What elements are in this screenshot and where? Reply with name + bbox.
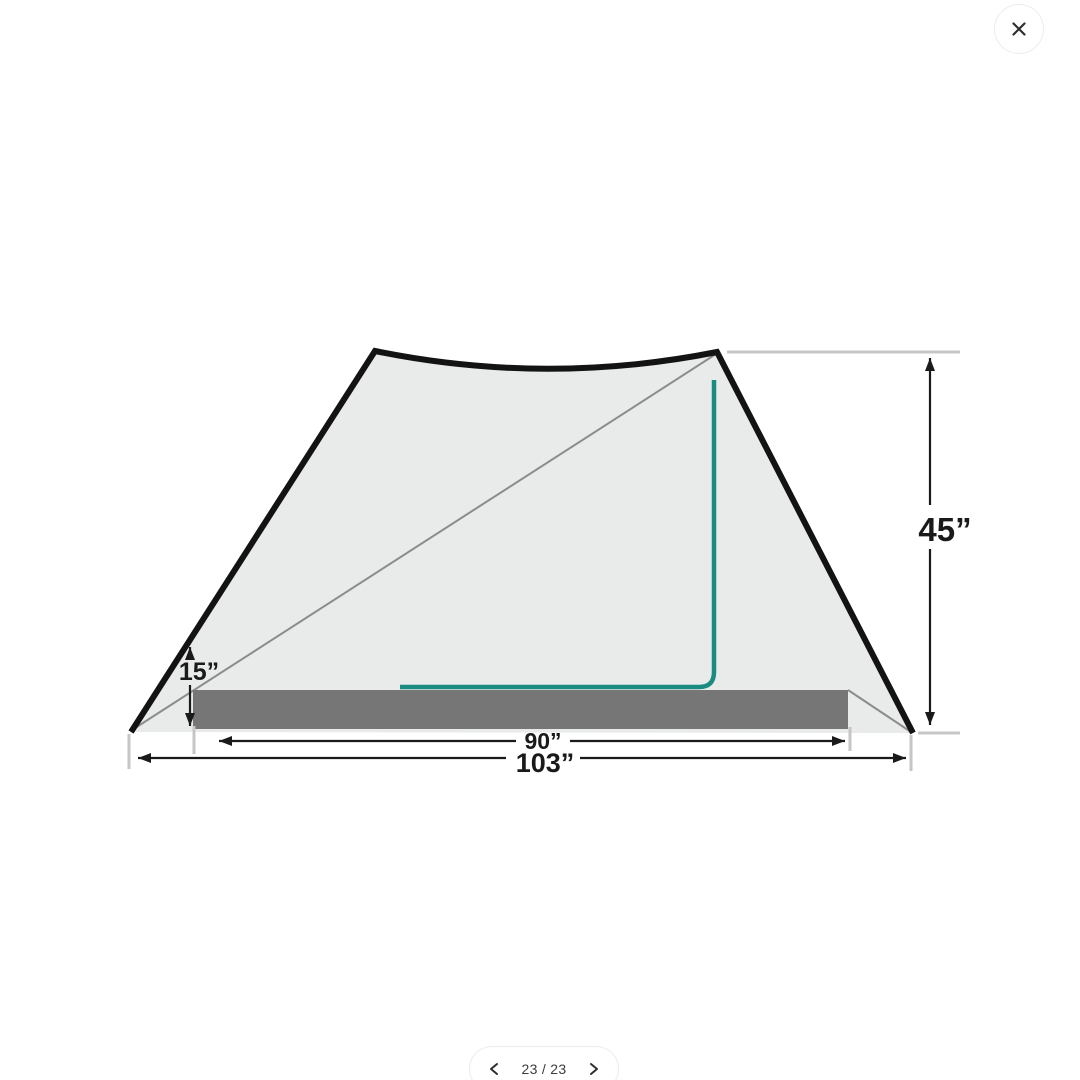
close-icon	[1008, 18, 1030, 40]
dim-103-label: 103”	[516, 748, 575, 778]
page-indicator: 23 / 23	[522, 1061, 567, 1077]
close-button[interactable]	[994, 4, 1044, 54]
tent-dimension-diagram: 45” 15” 90” 103”	[0, 0, 1080, 1080]
dim-15-label: 15”	[179, 658, 219, 686]
dim-45-label: 45”	[918, 511, 971, 548]
chevron-left-icon	[487, 1061, 503, 1077]
tent-floor	[193, 690, 848, 729]
previous-image-button[interactable]	[484, 1058, 506, 1080]
image-pagination: 23 / 23	[469, 1046, 619, 1080]
chevron-right-icon	[585, 1061, 601, 1077]
tent-diagram-svg: 45” 15” 90” 103”	[0, 0, 1080, 1080]
tent-fabric	[131, 351, 913, 733]
next-image-button[interactable]	[582, 1058, 604, 1080]
